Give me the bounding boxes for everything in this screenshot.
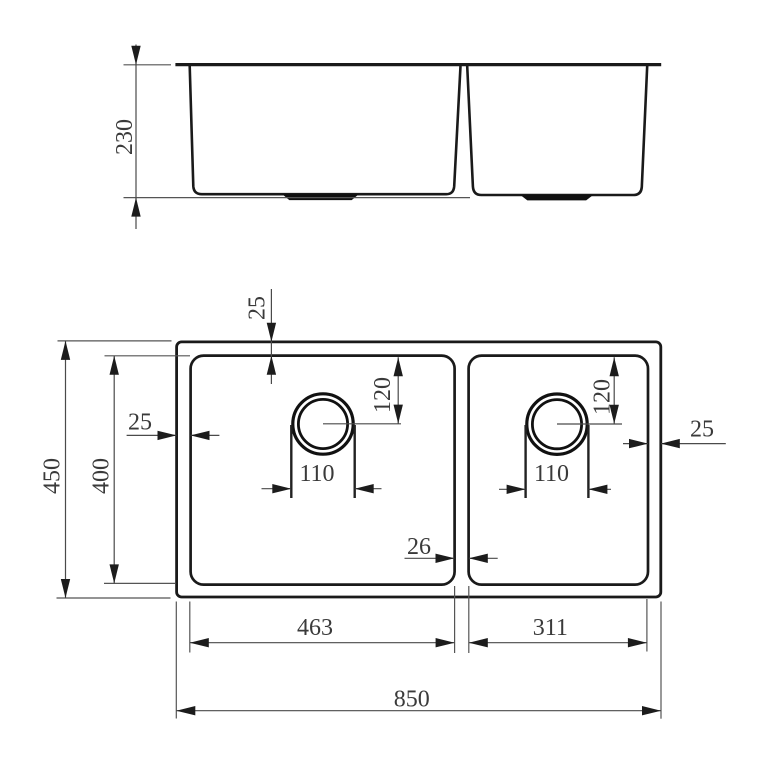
svg-text:25: 25: [690, 417, 714, 443]
svg-text:230: 230: [112, 119, 138, 155]
svg-text:311: 311: [533, 615, 568, 641]
svg-text:25: 25: [245, 296, 271, 320]
svg-text:26: 26: [407, 534, 431, 560]
svg-text:463: 463: [297, 615, 333, 641]
svg-text:400: 400: [89, 458, 115, 494]
svg-text:25: 25: [128, 410, 152, 436]
svg-text:450: 450: [40, 458, 66, 494]
svg-text:120: 120: [590, 379, 616, 415]
svg-text:850: 850: [394, 686, 430, 712]
svg-text:110: 110: [299, 461, 334, 487]
svg-text:120: 120: [370, 377, 396, 413]
svg-text:110: 110: [534, 461, 569, 487]
